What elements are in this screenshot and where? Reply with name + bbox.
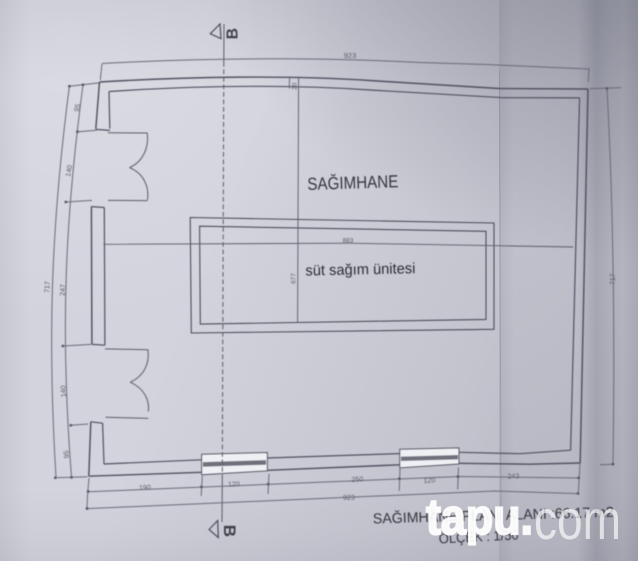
svg-text:com: com (534, 488, 621, 551)
svg-text:tapu.: tapu. (426, 489, 533, 545)
